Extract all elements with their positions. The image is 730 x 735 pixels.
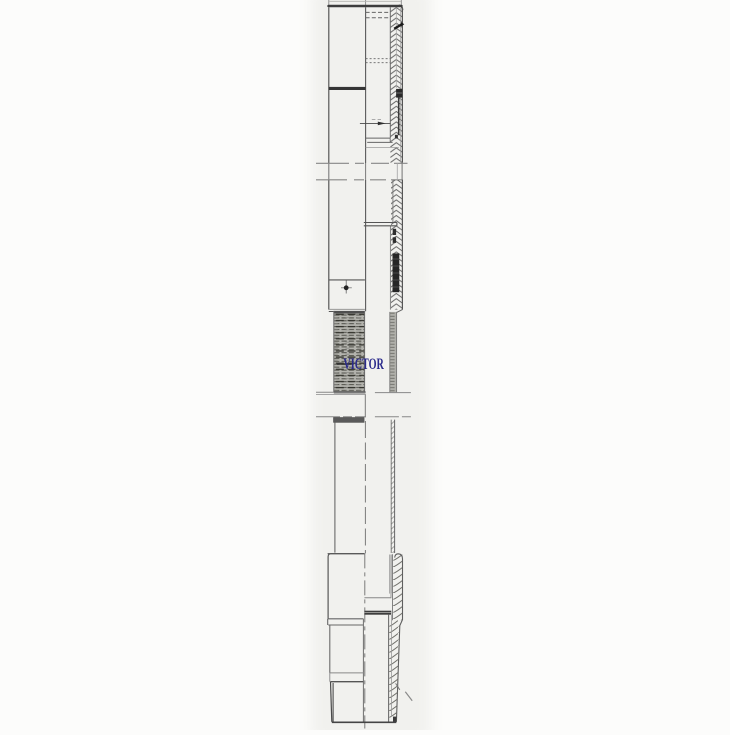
svg-text:VICTOR: VICTOR — [343, 356, 384, 373]
